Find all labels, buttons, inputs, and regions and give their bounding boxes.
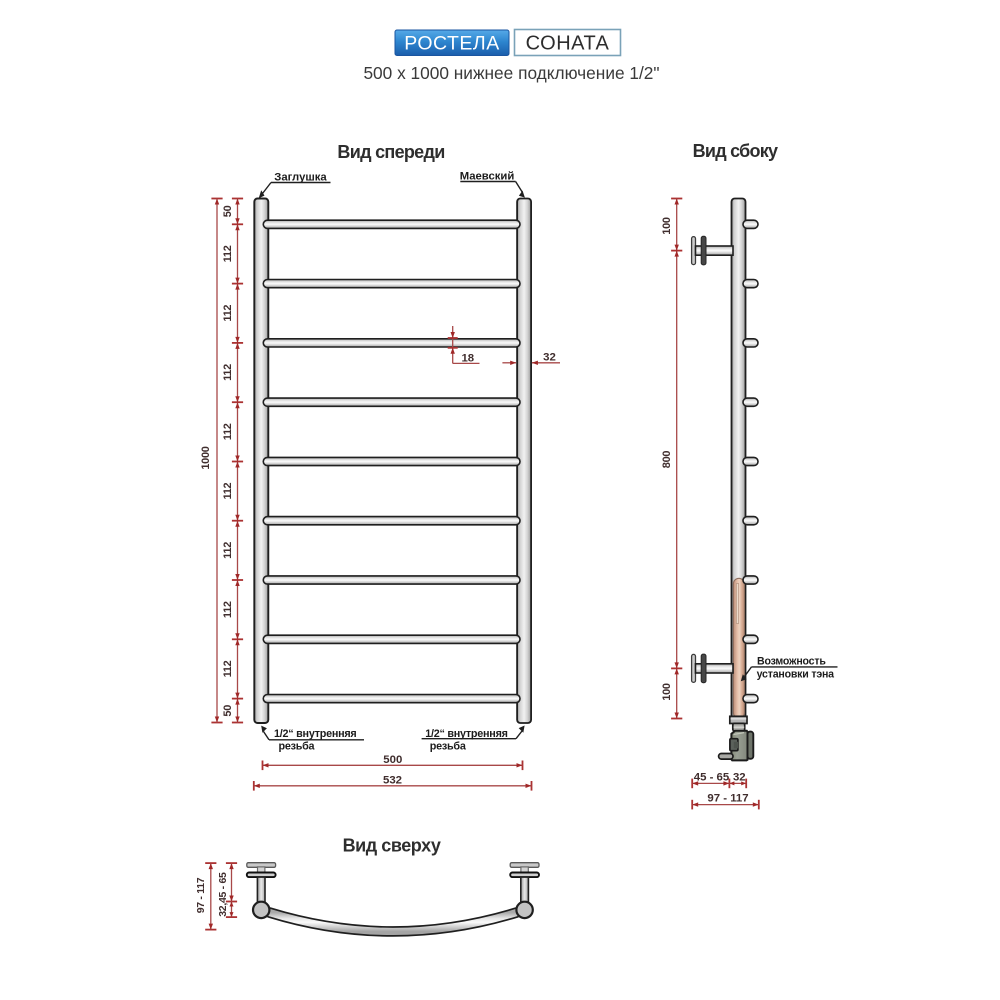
svg-text:Маевский: Маевский (460, 171, 515, 183)
svg-text:32: 32 (733, 771, 746, 783)
svg-text:112: 112 (222, 305, 234, 322)
svg-text:32,45 - 65: 32,45 - 65 (217, 872, 229, 917)
svg-text:45 - 65: 45 - 65 (694, 771, 730, 783)
svg-text:112: 112 (222, 423, 234, 440)
svg-text:1000: 1000 (200, 446, 212, 469)
svg-text:97 - 117: 97 - 117 (707, 792, 748, 804)
svg-text:Вид сверху: Вид сверху (343, 836, 441, 856)
svg-text:1/2“ внутренняя: 1/2“ внутренняя (274, 728, 356, 740)
svg-text:18: 18 (461, 352, 474, 364)
svg-text:резьба: резьба (430, 741, 467, 753)
svg-text:Вид спереди: Вид спереди (337, 142, 444, 162)
svg-text:резьба: резьба (279, 741, 316, 753)
svg-text:500 x 1000 нижнее подключение: 500 x 1000 нижнее подключение 1/2" (363, 63, 659, 83)
svg-text:32: 32 (543, 352, 556, 364)
svg-text:532: 532 (383, 774, 402, 786)
svg-text:100: 100 (661, 683, 673, 701)
svg-text:50: 50 (222, 705, 234, 717)
svg-text:112: 112 (222, 245, 234, 262)
svg-text:800: 800 (661, 451, 673, 469)
svg-text:Вид сбоку: Вид сбоку (693, 141, 778, 161)
svg-text:50: 50 (222, 205, 234, 217)
svg-text:Возможность: Возможность (757, 655, 826, 667)
svg-text:112: 112 (222, 364, 234, 381)
svg-text:СОНАТА: СОНАТА (526, 33, 610, 55)
svg-text:Заглушка: Заглушка (274, 172, 327, 184)
svg-text:97 - 117: 97 - 117 (195, 877, 207, 913)
svg-text:112: 112 (222, 542, 234, 559)
svg-text:112: 112 (222, 483, 234, 500)
svg-text:РОСТЕЛА: РОСТЕЛА (404, 33, 499, 55)
svg-text:112: 112 (222, 660, 234, 677)
svg-text:112: 112 (222, 601, 234, 618)
svg-text:установки тэна: установки тэна (757, 669, 835, 681)
svg-text:500: 500 (383, 754, 402, 766)
svg-text:100: 100 (661, 217, 673, 235)
